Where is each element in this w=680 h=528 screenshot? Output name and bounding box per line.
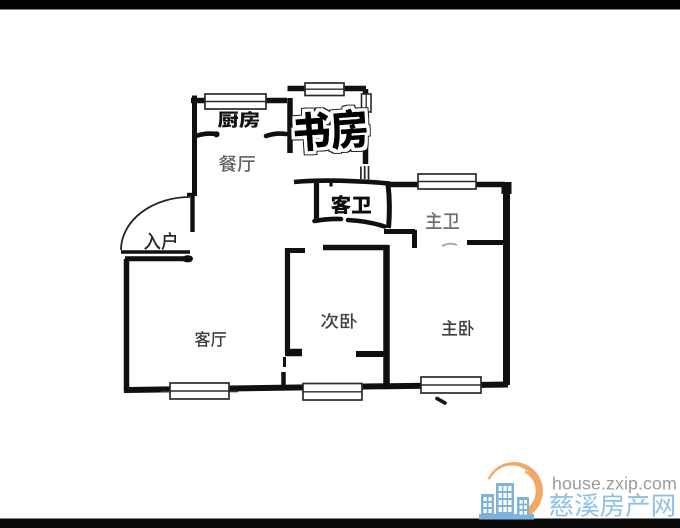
svg-text:house.zxip.com: house.zxip.com — [552, 474, 677, 494]
